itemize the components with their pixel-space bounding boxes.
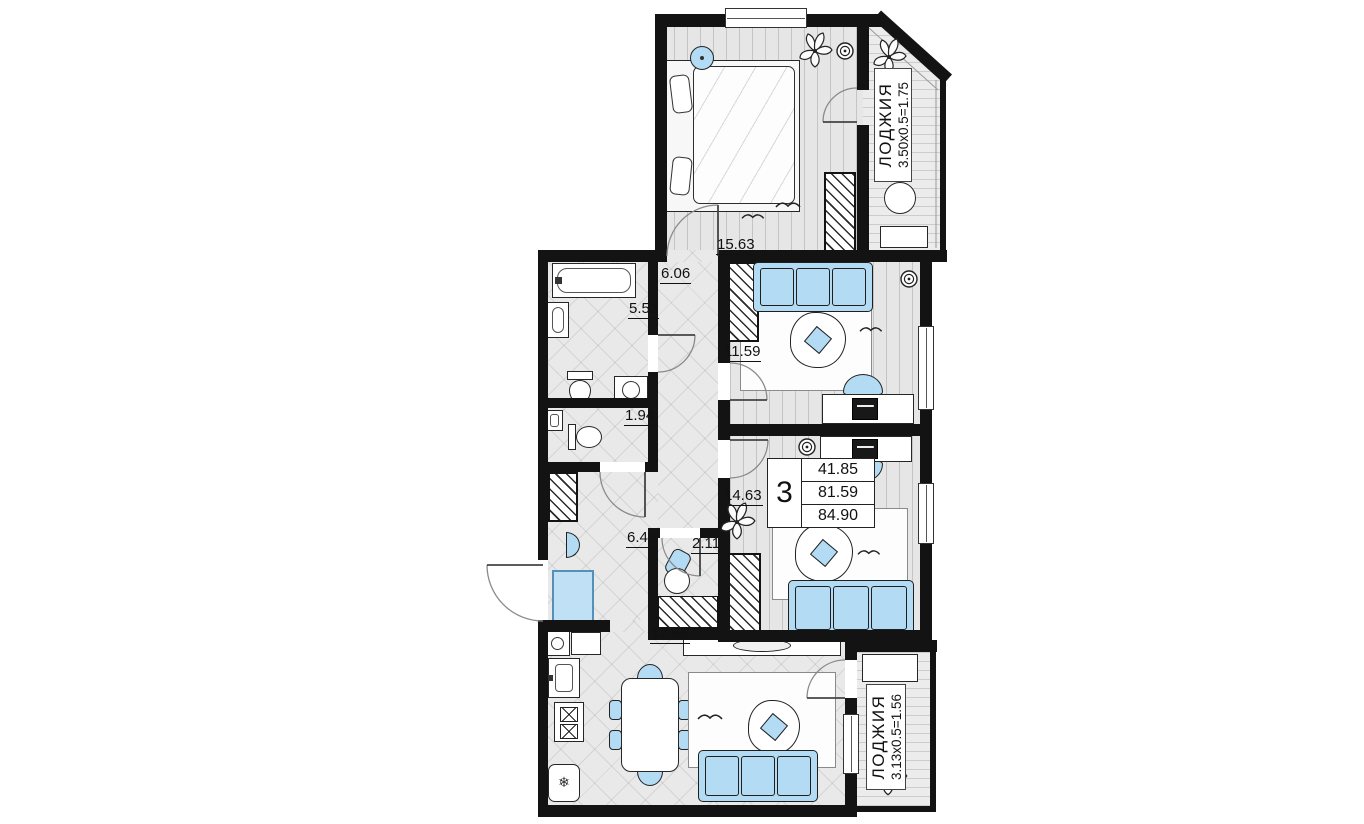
- rooms-count: 3: [768, 459, 802, 527]
- wall: [857, 125, 869, 262]
- kitchen-sofa: [698, 750, 818, 802]
- wall: [845, 642, 857, 660]
- loggia-bottom-dims: 3.13x0.5=1.56: [889, 694, 904, 780]
- wall: [645, 462, 658, 472]
- loggia-bottom-table: [862, 654, 918, 682]
- pillow: [669, 156, 693, 196]
- corridor-floor: [658, 262, 718, 528]
- wc-sink-bowl: [550, 414, 559, 427]
- area-label-corridor: 6.06: [660, 266, 691, 284]
- wall: [655, 14, 733, 27]
- bedroom-window: [725, 8, 807, 28]
- loggia-top-name: ЛОДЖИЯ: [876, 83, 896, 168]
- room1-computer: [852, 398, 878, 420]
- loggia-bottom-label: ЛОДЖИЯ 3.13x0.5=1.56: [866, 684, 906, 790]
- room1-sofa: [753, 262, 873, 312]
- bathtub: [552, 263, 636, 298]
- room2-window: [918, 483, 934, 544]
- bed: [666, 60, 800, 212]
- wall: [538, 462, 600, 472]
- area-label-wc: 1.94: [624, 408, 655, 426]
- room2-sofa: [788, 580, 914, 636]
- loggia-top-label: ЛОДЖИЯ 3.50x0.5=1.75: [874, 68, 912, 182]
- bathroom-sink: [547, 302, 569, 338]
- bathroom-sink-bowl: [552, 307, 564, 333]
- kitchen-counter: [571, 632, 601, 655]
- total-area-value: 84.90: [802, 505, 874, 527]
- area-label-bedroom: 15.63: [716, 237, 756, 255]
- loggia-glazing: [930, 648, 936, 812]
- kitchen-sink-unit: [548, 658, 580, 698]
- wall: [538, 472, 548, 560]
- vacuum-body: [664, 568, 690, 594]
- kitchen-washer: [545, 631, 570, 656]
- stove-burner: [560, 724, 578, 739]
- kitchen-stove: [554, 702, 584, 742]
- room2-computer: [852, 439, 878, 459]
- room1-window: [918, 326, 934, 410]
- bedroom-wardrobe: [824, 172, 856, 254]
- wc-sink: [546, 410, 563, 431]
- floor-plan-canvas: 15.63 6.06 5.53 1.94 11.59 14.63 6.45 2.…: [0, 0, 1364, 824]
- area-label-hallway: 6.45: [626, 530, 657, 548]
- kitchen-sink-bowl: [555, 664, 573, 692]
- apartment-area-value: 81.59: [802, 482, 874, 505]
- wall: [538, 628, 548, 815]
- wall: [648, 262, 658, 335]
- area-label-room2: 14.63: [723, 488, 763, 506]
- wall: [538, 250, 667, 262]
- area-label-bathroom: 5.53: [628, 301, 659, 319]
- loggia-top-bench: [880, 226, 928, 248]
- wc-toilet: [576, 426, 602, 448]
- wall: [920, 252, 932, 328]
- wall: [800, 14, 885, 27]
- kitchen-armchair: [748, 700, 800, 754]
- apartment-info-table: 3 41.85 81.59 84.90: [767, 458, 875, 528]
- room1-armchair: [790, 312, 846, 368]
- bedroom-lamp: [690, 46, 714, 70]
- pillow: [669, 74, 693, 114]
- area-label-storage: 2.11: [691, 536, 721, 554]
- wall: [718, 400, 730, 440]
- wall: [538, 250, 548, 472]
- loggia-top-table-round: [884, 182, 916, 214]
- info-areas: 41.85 81.59 84.90: [802, 459, 874, 527]
- loggia-top-dims: 3.50x0.5=1.75: [896, 82, 911, 168]
- room2-armchair: [795, 524, 853, 582]
- kitchen-loggia-window: [843, 714, 859, 774]
- bathroom-toilet-tank: [567, 371, 593, 380]
- stove-burner: [560, 707, 578, 722]
- bathtub-inner: [557, 268, 631, 293]
- washer-drum: [622, 381, 640, 399]
- wall: [730, 424, 932, 436]
- kitchen-washer-drum: [551, 637, 564, 650]
- wall: [920, 408, 932, 485]
- area-label-room1: 11.59: [723, 344, 761, 362]
- entrance-doormat: [552, 570, 594, 626]
- hall-closet: [548, 472, 578, 522]
- loggia-glazing: [857, 806, 936, 812]
- wall: [655, 14, 667, 262]
- bed-duvet: [693, 66, 795, 204]
- wc-toilet-tank: [568, 424, 576, 450]
- storage-hatch-floor: [658, 596, 718, 628]
- wall: [538, 805, 857, 817]
- dining-table: [621, 678, 679, 772]
- door-arc: [487, 565, 543, 621]
- bathtub-faucet: [555, 277, 562, 284]
- living-area-value: 41.85: [802, 459, 874, 482]
- room2-wardrobe: [727, 553, 761, 637]
- wall: [845, 640, 937, 652]
- wall: [845, 698, 857, 714]
- loggia-glazing: [940, 74, 946, 252]
- loggia-bottom-name: ЛОДЖИЯ: [869, 695, 889, 780]
- bedroom-door-floor: [667, 250, 718, 262]
- area-label-kitchen: 17.65: [650, 626, 690, 644]
- fridge: [548, 764, 580, 802]
- wall: [538, 620, 610, 632]
- wall: [857, 14, 869, 90]
